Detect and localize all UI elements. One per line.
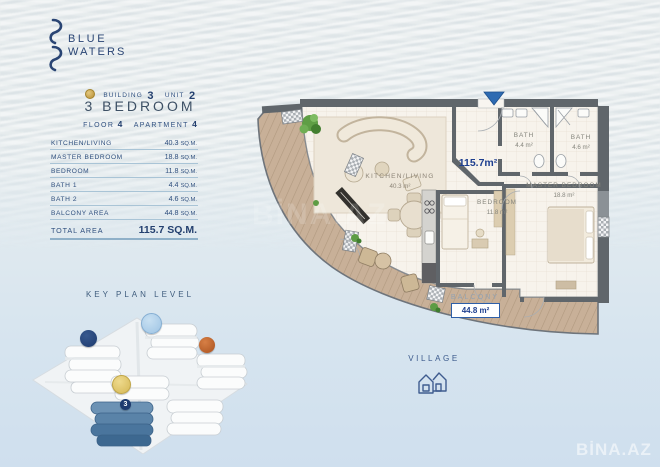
plan-total-area: 115.7m² bbox=[450, 157, 506, 169]
brand-line2: WATERS bbox=[68, 46, 126, 59]
floor-value: 4 bbox=[118, 119, 123, 129]
key-plan-3d-map bbox=[25, 302, 255, 454]
bath2-label: BATH 4.6 m² bbox=[557, 134, 605, 151]
watermark-center: BİNA.AZ bbox=[252, 198, 388, 232]
row-value: 40.3SQ.M. bbox=[165, 138, 197, 147]
bedroom-label: BEDROOM 11.8 m² bbox=[462, 199, 532, 216]
table-row: BALCONY AREA 44.8SQ.M. bbox=[50, 206, 198, 220]
total-label: TOTAL AREA bbox=[51, 226, 103, 235]
table-row: BATH 2 4.6SQ.M. bbox=[50, 192, 198, 206]
kitchen-living-label: KITCHEN/LIVING 40.3 m² bbox=[352, 173, 448, 190]
row-value: 4.6SQ.M. bbox=[169, 194, 197, 203]
apartment-value: 4 bbox=[192, 119, 197, 129]
brand-line1: BLUE bbox=[68, 33, 126, 46]
row-label: KITCHEN/LIVING bbox=[51, 140, 112, 147]
table-row: KITCHEN/LIVING 40.3SQ.M. bbox=[50, 136, 198, 150]
row-value: 4.4SQ.M. bbox=[169, 180, 197, 189]
listing-floorplan-page: BLUE WATERS BUILDING 3 UNIT 2 3 BEDROOM … bbox=[0, 0, 660, 467]
building-marker-lightblue bbox=[141, 313, 162, 334]
row-label: BALCONY AREA bbox=[51, 210, 109, 217]
apartment-type-title: 3 BEDROOM bbox=[45, 98, 235, 114]
master-bedroom-label: MASTER BEDROOM 18.8 m² bbox=[518, 182, 610, 199]
table-row: BEDROOM 11.8SQ.M. bbox=[50, 164, 198, 178]
floor-apartment-line: FLOOR 4 APARTMENT 4 bbox=[45, 119, 235, 129]
brand-name: BLUE WATERS bbox=[68, 33, 126, 59]
table-row: BATH 1 4.4SQ.M. bbox=[50, 178, 198, 192]
village-houses-icon bbox=[417, 368, 449, 398]
building-marker-yellow bbox=[112, 375, 131, 394]
key-plan-title: KEY PLAN LEVEL bbox=[45, 290, 235, 299]
row-value: 44.8SQ.M. bbox=[165, 208, 197, 217]
row-label: BEDROOM bbox=[51, 168, 89, 175]
apartment-label: APARTMENT bbox=[134, 122, 189, 129]
row-value: 18.8SQ.M. bbox=[165, 152, 197, 161]
blue-waters-logo-icon bbox=[46, 17, 66, 73]
building-marker-orange bbox=[199, 337, 215, 353]
floor-label: FLOOR bbox=[83, 122, 114, 129]
row-label: MASTER BEDROOM bbox=[51, 154, 123, 161]
total-value: 115.7 SQ.M. bbox=[139, 224, 197, 236]
balcony-area-badge: 44.8 m² bbox=[451, 303, 500, 318]
table-total-row: TOTAL AREA 115.7 SQ.M. bbox=[50, 220, 198, 240]
village-label: VILLAGE bbox=[390, 354, 478, 363]
bath1-label: BATH 4.4 m² bbox=[500, 132, 548, 149]
highlighted-building-badge: 3 bbox=[120, 399, 131, 410]
table-row: MASTER BEDROOM 18.8SQ.M. bbox=[50, 150, 198, 164]
area-table: KITCHEN/LIVING 40.3SQ.M. MASTER BEDROOM … bbox=[50, 136, 198, 240]
balcony-label: BALCONY bbox=[433, 292, 517, 301]
watermark-bottom-right: BİNA.AZ bbox=[576, 440, 652, 460]
row-label: BATH 2 bbox=[51, 196, 77, 203]
row-value: 11.8SQ.M. bbox=[165, 166, 197, 175]
row-label: BATH 1 bbox=[51, 182, 77, 189]
kitchen-counter bbox=[422, 190, 436, 283]
building-marker-navy bbox=[80, 330, 97, 347]
